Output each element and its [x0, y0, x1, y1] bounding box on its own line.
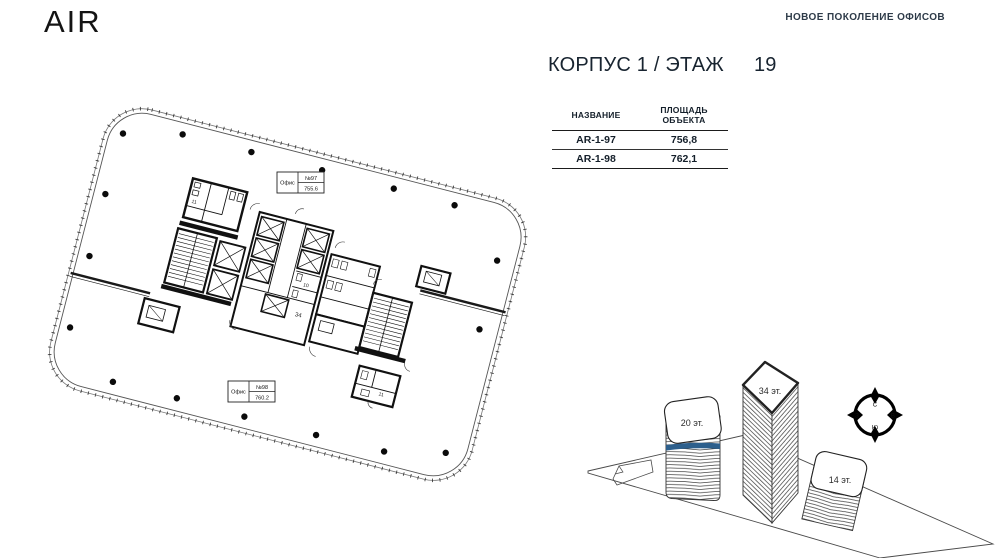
unit-name: AR-1-98 [552, 153, 640, 165]
tower-34: 34 эт. [743, 362, 798, 523]
col-header-area: ПЛОЩАДЬ ОБЪЕКТА [640, 105, 728, 125]
site-plan: 34 эт. 20 эт. 14 эт. [580, 358, 1000, 558]
brand-tagline: НОВОЕ ПОКОЛЕНИЕ ОФИСОВ [785, 12, 945, 23]
table-row[interactable]: AR-1-98 762,1 [552, 150, 728, 169]
area-table: НАЗВАНИЕ ПЛОЩАДЬ ОБЪЕКТА AR-1-97 756,8 A… [552, 103, 728, 169]
floor-page: AIR НОВОЕ ПОКОЛЕНИЕ ОФИСОВ КОРПУС 1 / ЭТ… [0, 0, 1000, 558]
building-floor-label: КОРПУС 1 / ЭТАЖ [548, 54, 724, 77]
svg-text:755.6: 755.6 [304, 187, 318, 193]
floor-number: 19 [754, 54, 777, 77]
page-title: КОРПУС 1 / ЭТАЖ 19 [548, 54, 777, 77]
compass: С В Ю З [847, 387, 903, 443]
svg-text:Ю: Ю [872, 425, 878, 432]
svg-text:34 эт.: 34 эт. [759, 386, 782, 396]
svg-text:Офис: Офис [231, 390, 246, 396]
office-label-98[interactable]: Офис №98 760.2 [228, 381, 275, 402]
tower-20[interactable]: 20 эт. [663, 395, 722, 500]
unit-area: 756,8 [640, 134, 728, 146]
office-label-97[interactable]: Офис №97 755.6 [277, 172, 324, 193]
svg-text:№97: №97 [305, 176, 317, 182]
unit-name: AR-1-97 [552, 134, 640, 146]
unit-area: 762,1 [640, 153, 728, 165]
floor-plan: 11 10 34 11 Офис №97 755.6 Офис №98 760.… [0, 0, 560, 558]
svg-text:С: С [873, 402, 878, 409]
svg-text:В: В [891, 413, 895, 420]
table-row[interactable]: AR-1-97 756,8 [552, 131, 728, 150]
svg-text:760.2: 760.2 [255, 396, 269, 402]
tower-14: 14 эт. [802, 450, 869, 531]
svg-text:З: З [855, 413, 859, 420]
svg-text:№98: №98 [256, 385, 268, 391]
table-header: НАЗВАНИЕ ПЛОЩАДЬ ОБЪЕКТА [552, 103, 728, 131]
svg-text:14 эт.: 14 эт. [829, 475, 852, 485]
col-header-name: НАЗВАНИЕ [552, 110, 640, 120]
svg-text:Офис: Офис [280, 181, 295, 187]
svg-text:20 эт.: 20 эт. [681, 418, 704, 428]
